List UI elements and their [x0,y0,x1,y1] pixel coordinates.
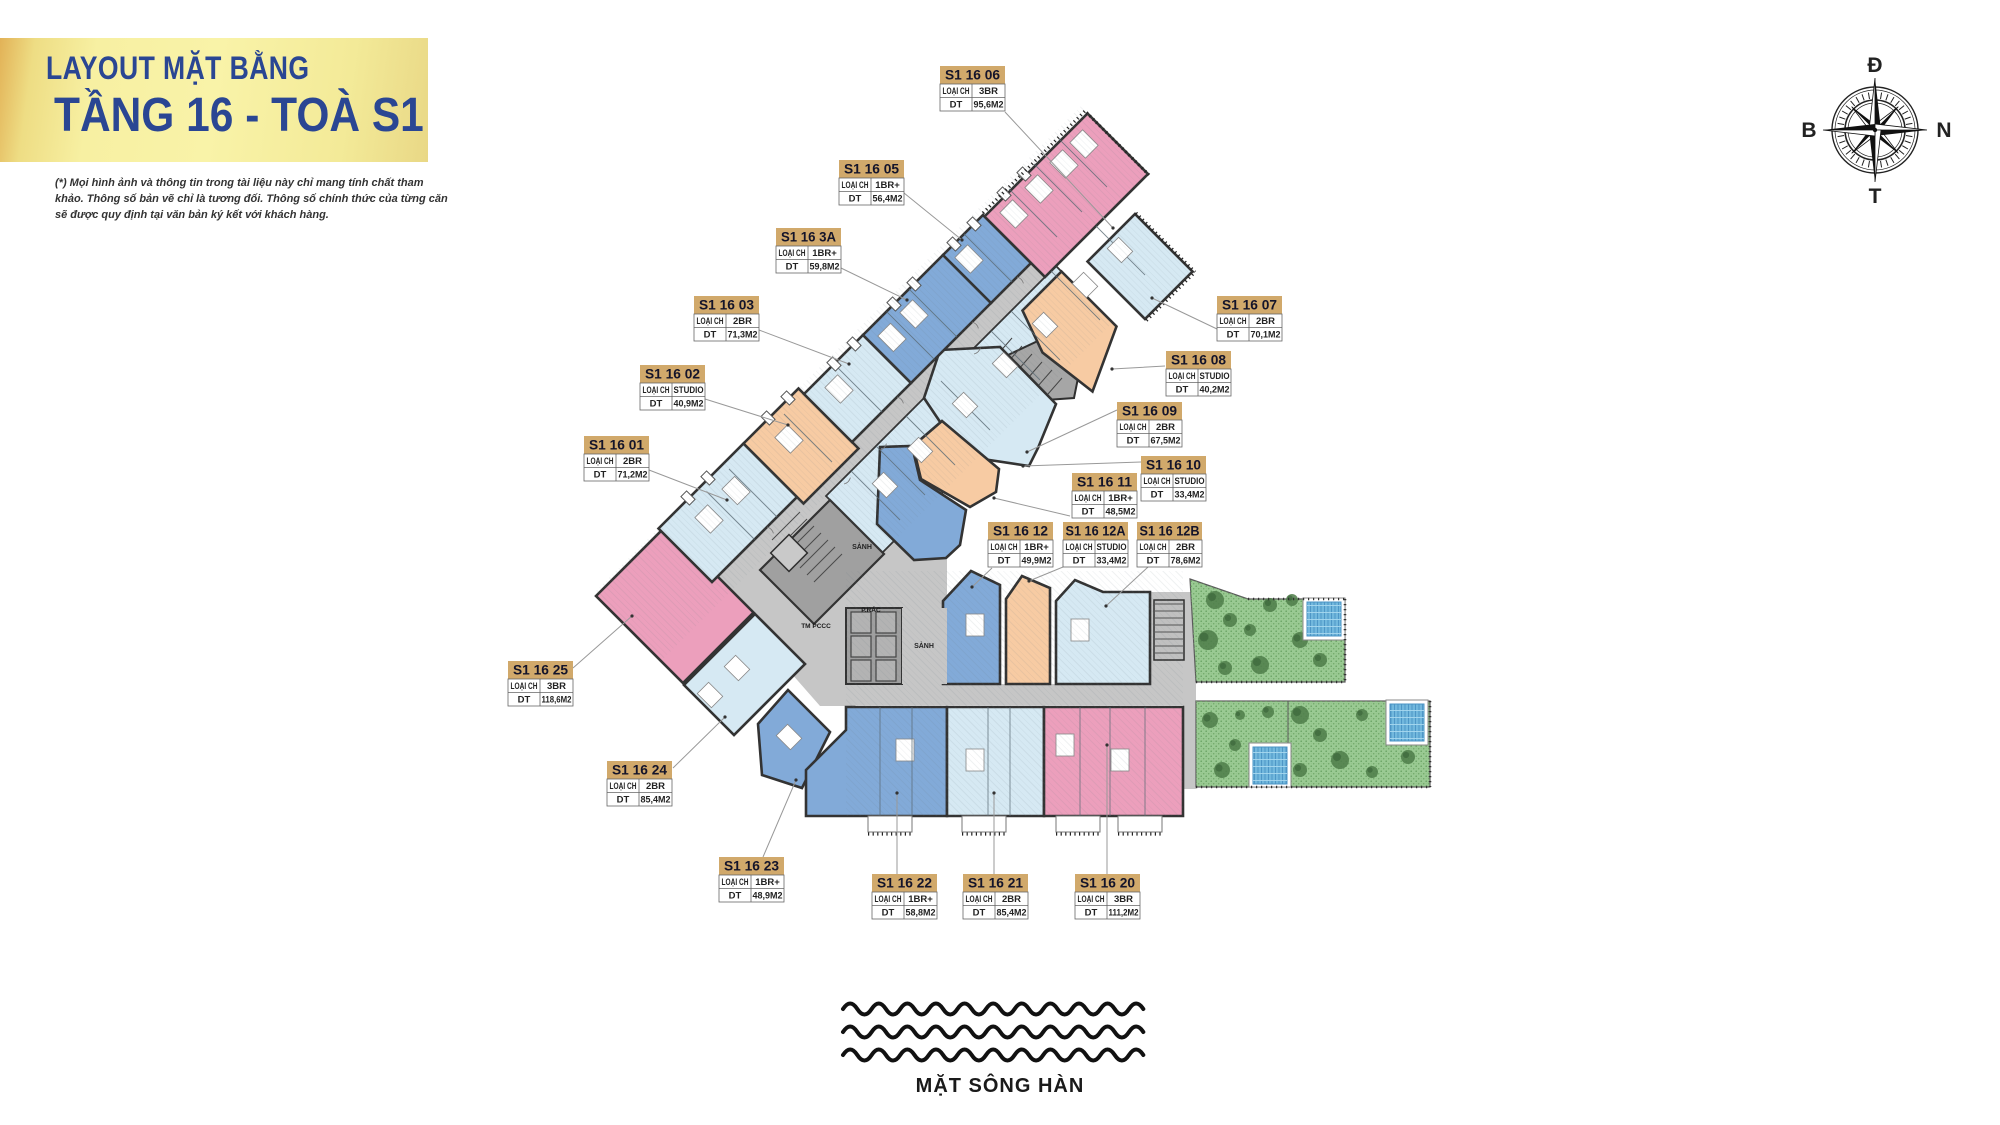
svg-text:LOẠI CH: LOẠI CH [697,316,724,327]
svg-text:70,1M2: 70,1M2 [1251,330,1281,341]
svg-text:TM PCCC: TM PCCC [801,623,831,630]
svg-text:S1 16 11: S1 16 11 [1077,474,1132,490]
svg-text:LOẠI CH: LOẠI CH [1066,542,1093,553]
svg-text:S1 16 10: S1 16 10 [1146,457,1201,473]
svg-text:48,5M2: 48,5M2 [1106,507,1136,518]
svg-text:DT: DT [1176,385,1189,396]
svg-text:S1 16 25: S1 16 25 [513,662,568,678]
svg-text:67,5M2: 67,5M2 [1151,436,1181,447]
svg-text:S1 16 12B: S1 16 12B [1140,523,1200,539]
svg-text:95,6M2: 95,6M2 [974,100,1004,111]
svg-text:3BR: 3BR [979,86,998,97]
svg-text:DT: DT [973,908,986,919]
svg-text:1BR+: 1BR+ [875,180,900,191]
svg-text:1BR+: 1BR+ [755,877,780,888]
svg-text:DT: DT [1127,436,1140,447]
svg-text:33,4M2: 33,4M2 [1097,556,1127,567]
svg-text:59,8M2: 59,8M2 [810,262,840,273]
svg-text:111,2M2: 111,2M2 [1109,908,1139,919]
svg-text:DT: DT [882,908,895,919]
svg-text:STUDIO: STUDIO [674,385,704,396]
svg-text:1BR+: 1BR+ [1108,493,1133,504]
svg-text:LOẠI CH: LOẠI CH [1078,894,1105,905]
svg-text:DT: DT [1085,908,1098,919]
svg-text:LOẠI CH: LOẠI CH [991,542,1018,553]
svg-text:1BR+: 1BR+ [812,248,837,259]
svg-text:1BR+: 1BR+ [1024,542,1049,553]
svg-text:2BR: 2BR [733,316,752,327]
svg-text:LOẠI CH: LOẠI CH [722,877,749,888]
svg-text:DT: DT [950,100,963,111]
svg-text:S1 16 22: S1 16 22 [877,875,932,891]
svg-text:40,2M2: 40,2M2 [1200,385,1230,396]
svg-text:SẢNH: SẢNH [852,542,872,551]
svg-text:S1 16 21: S1 16 21 [968,875,1023,891]
svg-text:49,9M2: 49,9M2 [1022,556,1052,567]
svg-text:LOẠI CH: LOẠI CH [1075,493,1102,504]
svg-text:3BR: 3BR [547,681,566,692]
svg-text:33,4M2: 33,4M2 [1175,490,1205,501]
svg-text:LOẠI CH: LOẠI CH [1169,371,1196,382]
svg-text:DT: DT [1073,556,1086,567]
svg-text:DT: DT [1227,330,1240,341]
svg-text:DT: DT [1151,490,1164,501]
svg-text:S1 16 3A: S1 16 3A [781,229,836,245]
svg-text:LOẠI CH: LOẠI CH [943,86,970,97]
svg-text:MẶT SÔNG HÀN: MẶT SÔNG HÀN [916,1073,1085,1097]
svg-text:1BR+: 1BR+ [908,894,933,905]
svg-text:N: N [1936,119,1951,142]
svg-text:Đ: Đ [1867,54,1882,77]
svg-text:S1 16 07: S1 16 07 [1222,297,1277,313]
svg-text:S1 16 09: S1 16 09 [1122,403,1177,419]
svg-text:DT: DT [1147,556,1160,567]
svg-text:LOẠI CH: LOẠI CH [842,180,869,191]
svg-text:2BR: 2BR [1002,894,1021,905]
svg-text:DT: DT [594,470,607,481]
svg-text:71,2M2: 71,2M2 [618,470,648,481]
svg-text:STUDIO: STUDIO [1200,371,1230,382]
svg-text:48,9M2: 48,9M2 [753,891,783,902]
svg-text:S1 16 05: S1 16 05 [844,161,899,177]
svg-text:118,6M2: 118,6M2 [542,695,572,706]
svg-text:LOẠI CH: LOẠI CH [610,781,637,792]
svg-text:S1 16 23: S1 16 23 [724,858,779,874]
svg-text:DT: DT [998,556,1011,567]
svg-text:85,4M2: 85,4M2 [997,908,1027,919]
svg-text:2BR: 2BR [623,456,642,467]
svg-text:LOẠI CH: LOẠI CH [966,894,993,905]
svg-text:2BR: 2BR [1256,316,1275,327]
svg-text:LOẠI CH: LOẠI CH [875,894,902,905]
svg-text:T: T [1869,185,1882,208]
svg-text:S1 16 01: S1 16 01 [589,437,644,453]
svg-text:STUDIO: STUDIO [1097,542,1127,553]
svg-text:DT: DT [650,399,663,410]
svg-text:LOẠI CH: LOẠI CH [1220,316,1247,327]
svg-text:DT: DT [617,795,630,806]
svg-text:DT: DT [849,194,862,205]
svg-text:LOẠI CH: LOẠI CH [1140,542,1167,553]
svg-text:LOẠI CH: LOẠI CH [511,681,538,692]
svg-text:DT: DT [729,891,742,902]
svg-text:S1 16 24: S1 16 24 [612,762,667,778]
svg-text:71,3M2: 71,3M2 [728,330,758,341]
svg-text:STUDIO: STUDIO [1175,476,1205,487]
svg-text:S1 16 12A: S1 16 12A [1066,523,1126,539]
svg-text:S1 16 12: S1 16 12 [993,523,1048,539]
svg-text:S1 16 03: S1 16 03 [699,297,754,313]
svg-text:85,4M2: 85,4M2 [641,795,671,806]
svg-text:LOẠI CH: LOẠI CH [1144,476,1171,487]
svg-text:2BR: 2BR [1156,422,1175,433]
svg-text:2BR: 2BR [1176,542,1195,553]
svg-text:58,8M2: 58,8M2 [906,908,936,919]
svg-text:S1 16 08: S1 16 08 [1171,352,1226,368]
svg-text:DT: DT [518,695,531,706]
svg-text:DT: DT [786,262,799,273]
svg-text:LOẠI CH: LOẠI CH [643,385,670,396]
svg-text:S1 16 20: S1 16 20 [1080,875,1135,891]
svg-text:B: B [1801,119,1816,142]
svg-text:DT: DT [704,330,717,341]
svg-text:56,4M2: 56,4M2 [873,194,903,205]
svg-text:S1 16 06: S1 16 06 [945,67,1000,83]
svg-text:DT: DT [1082,507,1095,518]
svg-text:LOẠI CH: LOẠI CH [779,248,806,259]
svg-text:LOẠI CH: LOẠI CH [587,456,614,467]
svg-text:2BR: 2BR [646,781,665,792]
svg-text:78,6M2: 78,6M2 [1171,556,1201,567]
svg-text:40,9M2: 40,9M2 [674,399,704,410]
svg-text:LOẠI CH: LOẠI CH [1120,422,1147,433]
svg-text:3BR: 3BR [1114,894,1133,905]
svg-text:S1 16 02: S1 16 02 [645,366,700,382]
